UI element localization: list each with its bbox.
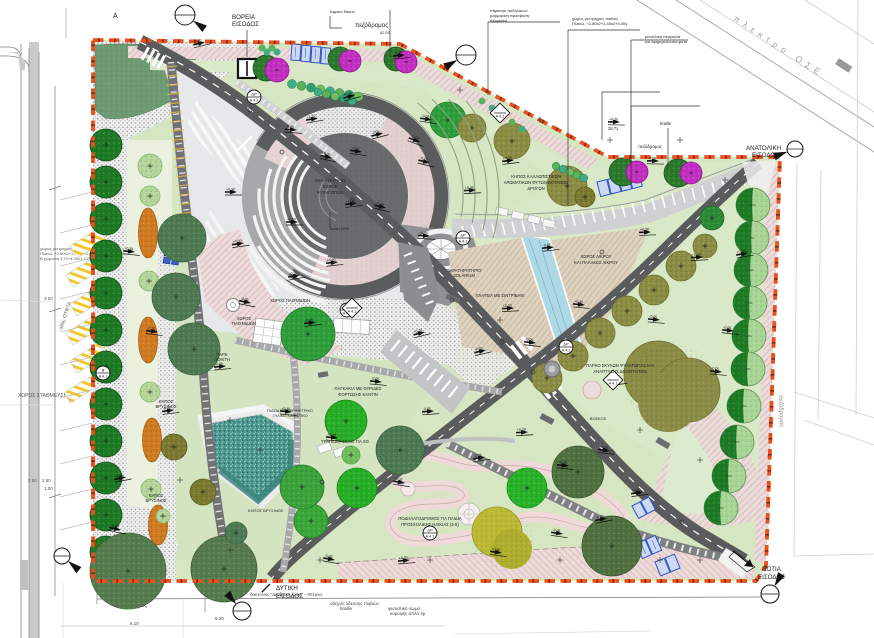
svg-text:-0.05: -0.05 [543, 243, 551, 248]
svg-text:ΠΟΔΗΛΑΤΟΔΡΟΜΟΣ ΓΙΑ ΠΑΙΔΙΑ: ΠΟΔΗΛΑΤΟΔΡΟΜΟΣ ΓΙΑ ΠΑΙΔΙΑ [398, 516, 461, 521]
svg-text:42.00: 42.00 [380, 30, 391, 35]
svg-text:A 4.1: A 4.1 [426, 535, 435, 539]
svg-text:ΒΡΥΣΙΝΟΣ: ΒΡΥΣΙΝΟΣ [155, 404, 176, 409]
svg-text:-0.05: -0.05 [394, 51, 402, 56]
svg-text:ΠΛΑΤΕΙΑ ΜΕ ΣΙΝΤΡΙΒΑΝΙ: ΠΛΑΤΕΙΑ ΜΕ ΣΙΝΤΡΙΒΑΝΙ [475, 293, 524, 298]
svg-text:Πλανώ. +2.80x2+1.40x2+4.00γ: Πλανώ. +2.80x2+1.40x2+4.00γ [572, 21, 627, 26]
svg-text:ΒΟΡΕΙΑ: ΒΟΡΕΙΑ [232, 14, 256, 21]
svg-text:ΔΥΤΙΚΗ: ΔΥΤΙΚΗ [276, 585, 298, 592]
svg-text:ΚΗΠΟΣ ΒΡΥΣΙΝΟΣ: ΚΗΠΟΣ ΒΡΥΣΙΝΟΣ [248, 508, 284, 513]
svg-text:ΑΝΑΠΤΥΞΗΣ ΔΕΞΙΟΤΗΤΩΝ: ΑΝΑΠΤΥΞΗΣ ΔΕΞΙΟΤΗΤΩΝ [593, 369, 646, 374]
svg-text:+0.60: +0.60 [287, 217, 296, 221]
svg-text:+0.30: +0.30 [419, 231, 428, 235]
svg-text:-0.05: -0.05 [286, 125, 294, 130]
svg-text:ΠΑΓΚΑΚΙΑ ΜΕ ΘΥΡΙΔΕΣ: ΠΑΓΚΑΚΙΑ ΜΕ ΘΥΡΙΔΕΣ [335, 386, 382, 391]
svg-text:-0.05: -0.05 [649, 314, 657, 319]
svg-text:ΤΡΑΠΕΖΙΑ ΣΚΑΚΙ ΓΙΑ ΧΘ: ΤΡΑΠΕΖΙΑ ΣΚΑΚΙ ΓΙΑ ΧΘ [321, 439, 369, 444]
svg-text:ΝΟΤΙΑ: ΝΟΤΙΑ [762, 566, 782, 573]
svg-text:πεζόδρομος: πεζόδρομος [638, 143, 663, 149]
svg-text:A 4.1: A 4.1 [459, 240, 468, 244]
svg-text:Β: Β [102, 368, 105, 373]
svg-text:A 4.1: A 4.1 [562, 349, 571, 353]
svg-text:πέργκολα: πέργκολα [490, 18, 508, 23]
svg-text:2.50: 2.50 [28, 478, 37, 483]
svg-text:A 4.1: A 4.1 [99, 375, 108, 379]
svg-text:3.00: 3.00 [44, 296, 53, 301]
svg-text:A 4.1: A 4.1 [608, 381, 618, 386]
svg-text:κορυφής απλό 4μ: κορυφής απλό 4μ [390, 610, 426, 616]
svg-text:+0.30: +0.30 [692, 253, 701, 257]
svg-text:-0.05: -0.05 [215, 362, 223, 367]
svg-text:ΠΑΡΚΟ ΣΚΥΛΩΝ ΨΥΧΑΓΩΓΙΑΣ ΚΑΙ: ΠΑΡΚΟ ΣΚΥΛΩΝ ΨΥΧΑΓΩΓΙΑΣ ΚΑΙ [586, 363, 654, 368]
svg-text:braille: braille [340, 606, 353, 611]
svg-text:ΠΙΑΖΙΑ ΜΕ ΠΕΡΙΜΕΤΡΙΚΟ: ΠΙΑΖΙΑ ΜΕ ΠΕΡΙΜΕΤΡΙΚΟ [267, 409, 313, 413]
svg-text:ΔΡ: ΔΡ [427, 528, 433, 533]
svg-text:ΔΡΟΓΩΝ: ΔΡΟΓΩΝ [527, 186, 544, 191]
svg-text:ΕΙΣΟΔΟΣ: ΕΙΣΟΔΟΣ [232, 21, 259, 28]
svg-text:για εφημερεύουσα φυτά: για εφημερεύουσα φυτά [645, 39, 688, 44]
svg-text:ΚΑΙ ΠΑΛΛΚΕΣ ΛΙΚΡΟΥ: ΚΑΙ ΠΑΛΛΚΕΣ ΛΙΚΡΟΥ [574, 260, 618, 265]
svg-text:ΧΩΡΟΣ ΣΤΑΘΜΕΥΣΗΣ: ΧΩΡΟΣ ΣΤΑΘΜΕΥΣΗΣ [18, 393, 70, 399]
svg-text:A 4.1: A 4.1 [495, 114, 505, 119]
svg-text:ΔΡ: ΔΡ [563, 342, 569, 347]
svg-text:+0.30: +0.30 [640, 227, 649, 231]
svg-text:-0.05: -0.05 [371, 376, 379, 381]
svg-text:+0.30: +0.30 [327, 432, 336, 437]
svg-text:πεζόδρομος: πεζόδρομος [355, 22, 388, 29]
svg-text:πεζόδρομος: πεζόδρομος [777, 395, 785, 428]
svg-text:A 4.1: A 4.1 [347, 309, 357, 314]
svg-text:-0.05: -0.05 [423, 407, 431, 412]
svg-text:6.10: 6.10 [130, 621, 139, 626]
svg-text:braille: braille [660, 121, 672, 126]
svg-text:28.71: 28.71 [608, 126, 619, 131]
svg-text:+0.30: +0.30 [226, 187, 235, 191]
svg-text:1.00: 1.00 [44, 486, 53, 491]
svg-text:ΧΩΡΟΣ ΠΑΙΧΝΙΔΙΩΝ: ΧΩΡΟΣ ΠΑΙΧΝΙΔΙΩΝ [270, 298, 310, 303]
svg-text:+0.30: +0.30 [609, 117, 618, 121]
svg-text:ΦΟΡΤΩΣΗΣ ΚΑΝΤΙΝ: ΦΟΡΤΩΣΗΣ ΚΑΝΤΙΝ [338, 392, 378, 397]
svg-text:-0.05: -0.05 [723, 325, 731, 330]
svg-text:+0.30: +0.30 [465, 186, 474, 190]
svg-text:ΑΝΑΨΥΚΤΗΡΙΟ: ΑΝΑΨΥΚΤΗΡΙΟ [315, 178, 346, 183]
svg-text:ΑΝΑΤΟΛΙΚΗ: ΑΝΑΤΟΛΙΚΗ [746, 145, 781, 152]
svg-text:ΒΡΥΣΙΝΟΣ: ΒΡΥΣΙΝΟΣ [145, 498, 166, 503]
svg-text:ΔΡ: ΔΡ [460, 233, 466, 238]
svg-text:+0.30: +0.30 [399, 556, 408, 561]
svg-text:2.50: 2.50 [42, 478, 51, 483]
svg-text:οδηγός όδευσης τυφλών: οδηγός όδευσης τυφλών [330, 600, 380, 606]
svg-text:+0.30: +0.30 [517, 428, 526, 432]
svg-text:6.20: 6.20 [215, 616, 224, 621]
svg-text:ΧΩΡΟΣ ΛΙΚΡΟΥ: ΧΩΡΟΣ ΛΙΚΡΟΥ [581, 254, 612, 259]
svg-text:κλίση 10%: κλίση 10% [330, 226, 349, 231]
svg-text:ΕΙΣΟΔΟΣ: ΕΙΣΟΔΟΣ [276, 593, 303, 600]
svg-text:ΨΥΧΑΓΩΓΙΩΝ: ΨΥΧΑΓΩΓΙΩΝ [317, 190, 344, 195]
svg-text:ΚΗΠΟΣ ΚΑΛΛΩΠΙΣΤΙΚΩΝ: ΚΗΠΟΣ ΚΑΛΛΩΠΙΣΤΙΚΩΝ [511, 174, 561, 179]
svg-text:ΞΥΛΙΝΟ ΚΑΘΙΣΤΙΚΟ: ΞΥΛΙΝΟ ΚΑΘΙΣΤΙΚΟ [272, 414, 307, 418]
svg-text:SOLARIUM: SOLARIUM [453, 273, 475, 278]
svg-text:Β χώρωση 4.70+4.34x1 2.76γ: Β χώρωση 4.70+4.34x1 2.76γ [40, 256, 93, 261]
svg-text:+0.30: +0.30 [574, 299, 583, 304]
svg-text:-0.05: -0.05 [525, 337, 533, 342]
svg-text:+0.30: +0.30 [503, 304, 512, 308]
svg-text:-0.05: -0.05 [711, 366, 719, 371]
svg-text:Ιερμικό δίκτυο: Ιερμικό δίκτυο [330, 9, 356, 14]
svg-text:A: A [113, 13, 118, 20]
svg-text:ΠΑΙΧΝΙΔΙΩΝ: ΠΑΙΧΝΙΔΙΩΝ [232, 321, 256, 326]
svg-text:ΑΡΩΜΑΤΙΚΩΝ ΦΥΤΩΝ ΒΟΤΑΝΩΝ: ΑΡΩΜΑΤΙΚΩΝ ΦΥΤΩΝ ΒΟΤΑΝΩΝ [504, 180, 569, 185]
svg-text:ΕΙΣΟΔΟΣ: ΕΙΣΟΔΟΣ [752, 152, 779, 159]
svg-text:A 4.1: A 4.1 [250, 99, 259, 103]
svg-text:ΠΟΙΚΤΗ: ΠΟΙΚΤΗ [214, 357, 230, 362]
svg-text:ΧΩΡΟΣ: ΧΩΡΟΣ [323, 184, 338, 189]
svg-text:-0.20: -0.20 [648, 156, 656, 160]
svg-text:ΒΟΣΚΟΣ: ΒΟΣΚΟΣ [590, 416, 607, 421]
svg-text:ΕΙΣΟΔΟΣ: ΕΙΣΟΔΟΣ [758, 574, 785, 581]
svg-text:ΠΡΟΣΧΟΛΙΚΗΣ ΗΛΙΚΙΑΣ (3-5): ΠΡΟΣΧΟΛΙΚΗΣ ΗΛΙΚΙΑΣ (3-5) [401, 522, 459, 527]
svg-text:ΔΡ: ΔΡ [251, 92, 257, 97]
